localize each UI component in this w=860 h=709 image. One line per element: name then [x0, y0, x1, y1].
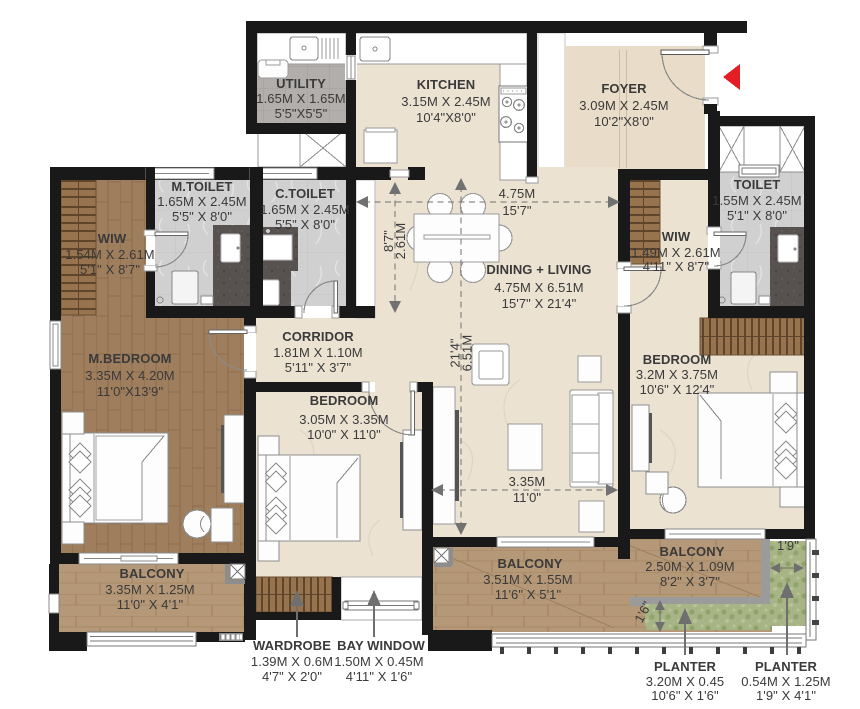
svg-text:4'7" X 2'0": 4'7" X 2'0"	[262, 669, 322, 684]
svg-text:C.TOILET: C.TOILET	[275, 186, 335, 201]
svg-text:3.20M X 0.45: 3.20M X 0.45	[646, 674, 725, 689]
svg-text:3.35M X 1.25M: 3.35M X 1.25M	[105, 582, 194, 597]
svg-text:4.75M X 6.51M: 4.75M X 6.51M	[494, 280, 583, 295]
svg-text:BEDROOM: BEDROOM	[643, 352, 712, 367]
svg-text:5'11" X 3'7": 5'11" X 3'7"	[285, 360, 352, 375]
svg-text:3.2M X 3.75M: 3.2M X 3.75M	[636, 367, 718, 382]
svg-text:KITCHEN: KITCHEN	[417, 77, 475, 92]
svg-text:5'5"X5'5": 5'5"X5'5"	[275, 106, 328, 121]
svg-text:CORRIDOR: CORRIDOR	[282, 329, 354, 344]
svg-text:5'1" X 8'0": 5'1" X 8'0"	[727, 208, 787, 223]
svg-text:10'6" X 12'4": 10'6" X 12'4"	[640, 382, 715, 397]
svg-text:PLANTER: PLANTER	[654, 659, 717, 674]
svg-text:10'4"X8'0": 10'4"X8'0"	[416, 110, 476, 125]
svg-text:WIW: WIW	[662, 229, 691, 244]
svg-text:3.09M X 2.45M: 3.09M X 2.45M	[579, 98, 668, 113]
svg-text:4'11" X 8'7": 4'11" X 8'7"	[643, 259, 710, 274]
svg-text:BAY WINDOW: BAY WINDOW	[337, 638, 425, 653]
svg-text:DINING + LIVING: DINING + LIVING	[486, 262, 591, 277]
svg-text:1.65M X 2.45M: 1.65M X 2.45M	[157, 194, 246, 209]
svg-text:4.75M: 4.75M	[499, 186, 536, 201]
svg-text:1.65M X 2.45M: 1.65M X 2.45M	[260, 202, 349, 217]
svg-text:1.81M X 1.10M: 1.81M X 1.10M	[273, 345, 362, 360]
svg-text:BALCONY: BALCONY	[660, 544, 725, 559]
svg-text:1.50M X 0.45M: 1.50M X 0.45M	[334, 654, 423, 669]
svg-text:11'0": 11'0"	[513, 490, 542, 505]
svg-text:1.39M X 0.6M: 1.39M X 0.6M	[251, 654, 333, 669]
svg-text:3.05M X 3.35M: 3.05M X 3.35M	[299, 412, 388, 427]
svg-text:0.54M X 1.25M: 0.54M X 1.25M	[741, 674, 830, 689]
svg-text:11'0" X 4'1": 11'0" X 4'1"	[117, 597, 184, 612]
svg-text:BALCONY: BALCONY	[498, 556, 563, 571]
svg-text:M.TOILET: M.TOILET	[171, 179, 232, 194]
svg-text:PLANTER: PLANTER	[755, 659, 818, 674]
svg-text:10'2"X8'0": 10'2"X8'0"	[594, 114, 654, 129]
svg-text:8'2" X 3'7": 8'2" X 3'7"	[660, 574, 720, 589]
svg-text:10'6" X 1'6": 10'6" X 1'6"	[651, 688, 719, 703]
svg-text:WIW: WIW	[98, 231, 127, 246]
svg-text:5'1" X 8'7": 5'1" X 8'7"	[80, 262, 140, 277]
svg-text:3.15M X 2.45M: 3.15M X 2.45M	[401, 94, 490, 109]
svg-text:5'5" X 8'0": 5'5" X 8'0"	[275, 217, 335, 232]
svg-text:11'6" X 5'1": 11'6" X 5'1"	[495, 587, 562, 602]
svg-text:15'7": 15'7"	[502, 203, 532, 218]
svg-text:4'11" X 1'6": 4'11" X 1'6"	[346, 669, 413, 684]
svg-text:1'9": 1'9"	[777, 538, 799, 553]
svg-text:1.49M X 2.61M: 1.49M X 2.61M	[631, 245, 720, 260]
svg-text:2.50M X 1.09M: 2.50M X 1.09M	[645, 559, 734, 574]
svg-text:3.51M X 1.55M: 3.51M X 1.55M	[483, 572, 572, 587]
svg-text:FOYER: FOYER	[601, 81, 647, 96]
svg-text:BEDROOM: BEDROOM	[310, 393, 379, 408]
svg-text:10'0" X 11'0": 10'0" X 11'0"	[307, 427, 381, 442]
svg-text:1'9" X 4'1": 1'9" X 4'1"	[756, 688, 816, 703]
svg-text:TOILET: TOILET	[734, 177, 781, 192]
svg-text:UTILITY: UTILITY	[276, 76, 326, 91]
svg-text:21'4": 21'4"	[448, 338, 463, 368]
svg-text:3.35M: 3.35M	[509, 474, 546, 489]
svg-text:M.BEDROOM: M.BEDROOM	[88, 351, 171, 366]
svg-text:1.54M X 2.61M: 1.54M X 2.61M	[65, 247, 154, 262]
svg-text:11'0"X13'9": 11'0"X13'9"	[97, 384, 164, 399]
svg-text:8'7": 8'7"	[381, 230, 396, 252]
svg-text:3.35M X 4.20M: 3.35M X 4.20M	[85, 368, 174, 383]
svg-text:WARDROBE: WARDROBE	[253, 638, 331, 653]
svg-text:BALCONY: BALCONY	[120, 566, 185, 581]
svg-text:5'5" X 8'0": 5'5" X 8'0"	[172, 209, 232, 224]
svg-text:15'7" X 21'4": 15'7" X 21'4"	[502, 296, 577, 311]
svg-text:1.55M X 2.45M: 1.55M X 2.45M	[712, 193, 801, 208]
svg-text:1.65M X 1.65M: 1.65M X 1.65M	[256, 91, 345, 106]
